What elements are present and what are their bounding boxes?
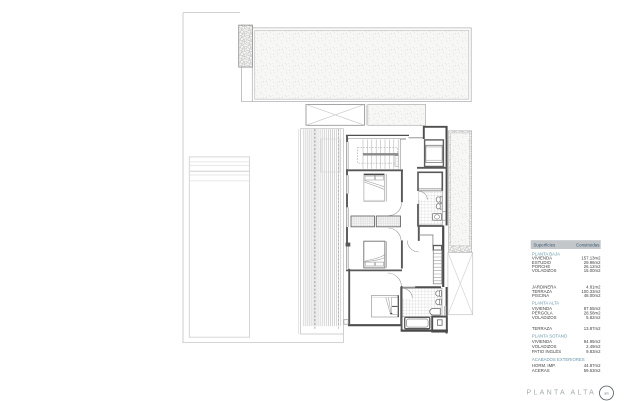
svg-text:am: am bbox=[604, 392, 609, 396]
svg-text:PLANTA ALTA: PLANTA ALTA bbox=[527, 390, 597, 397]
svg-text:ACABADOS EXTERIORES: ACABADOS EXTERIORES bbox=[532, 357, 585, 362]
svg-text:PISCINA: PISCINA bbox=[532, 293, 549, 298]
svg-text:13.87m2: 13.87m2 bbox=[584, 326, 601, 331]
svg-text:PLANTA ALTA: PLANTA ALTA bbox=[532, 301, 559, 306]
svg-text:VOLADIZOS: VOLADIZOS bbox=[532, 315, 557, 320]
svg-text:HORM. IMP.: HORM. IMP. bbox=[532, 363, 556, 368]
svg-text:PATIO INGLÉS: PATIO INGLÉS bbox=[532, 349, 561, 354]
svg-text:5.82m2: 5.82m2 bbox=[586, 315, 601, 320]
svg-text:15.00m2: 15.00m2 bbox=[584, 268, 601, 273]
svg-text:44.87m2: 44.87m2 bbox=[584, 363, 601, 368]
svg-text:PLANTA SOTANO: PLANTA SOTANO bbox=[532, 333, 568, 338]
svg-text:Construidas: Construidas bbox=[576, 243, 600, 248]
svg-text:TERRAZA: TERRAZA bbox=[532, 326, 552, 331]
svg-text:59.63m2: 59.63m2 bbox=[584, 368, 601, 373]
svg-text:Superficies: Superficies bbox=[534, 243, 557, 248]
svg-text:48.00m2: 48.00m2 bbox=[584, 293, 601, 298]
svg-text:ACERAS: ACERAS bbox=[532, 368, 550, 373]
svg-text:9.83m2: 9.83m2 bbox=[586, 349, 601, 354]
svg-text:VOLADIZOS: VOLADIZOS bbox=[532, 268, 557, 273]
